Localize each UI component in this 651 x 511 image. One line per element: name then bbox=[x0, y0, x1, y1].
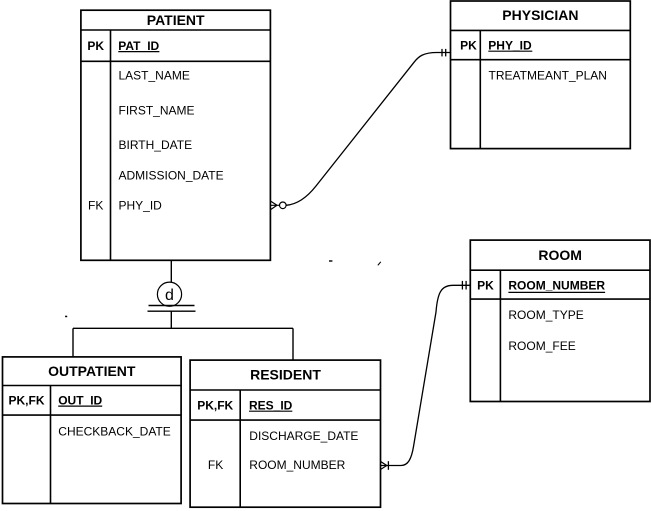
svg-text:ROOM_NUMBER: ROOM_NUMBER bbox=[508, 279, 605, 293]
svg-text:FK: FK bbox=[88, 199, 103, 213]
svg-text:PK: PK bbox=[477, 279, 494, 293]
svg-text:RESIDENT: RESIDENT bbox=[250, 367, 321, 383]
svg-text:PHY_ID: PHY_ID bbox=[488, 38, 532, 52]
svg-text:PK: PK bbox=[460, 38, 477, 52]
svg-text:FK: FK bbox=[208, 458, 223, 472]
svg-text:DISCHARGE_DATE: DISCHARGE_DATE bbox=[249, 429, 358, 443]
svg-text:PATIENT: PATIENT bbox=[147, 12, 205, 28]
svg-text:FIRST_NAME: FIRST_NAME bbox=[119, 104, 195, 118]
svg-text:RES_ID: RES_ID bbox=[249, 399, 293, 413]
svg-text:PHY_ID: PHY_ID bbox=[119, 199, 163, 213]
svg-text:PHYSICIAN: PHYSICIAN bbox=[502, 7, 578, 23]
svg-text:ROOM_FEE: ROOM_FEE bbox=[508, 339, 575, 353]
svg-text:PK,FK: PK,FK bbox=[9, 394, 45, 408]
svg-text:PAT_ID: PAT_ID bbox=[118, 39, 159, 53]
svg-text:PK,FK: PK,FK bbox=[197, 399, 233, 413]
svg-text:ROOM: ROOM bbox=[538, 247, 582, 263]
svg-text:OUT_ID: OUT_ID bbox=[58, 394, 102, 408]
svg-text:TREATMEANT_PLAN: TREATMEANT_PLAN bbox=[489, 69, 607, 83]
svg-text:OUTPATIENT: OUTPATIENT bbox=[48, 363, 136, 379]
svg-text:CHECKBACK_DATE: CHECKBACK_DATE bbox=[58, 425, 170, 439]
svg-text:ROOM_NUMBER: ROOM_NUMBER bbox=[249, 458, 345, 472]
svg-text:ADMISSION_DATE: ADMISSION_DATE bbox=[119, 169, 224, 183]
svg-text:d: d bbox=[165, 287, 174, 304]
svg-text:BIRTH_DATE: BIRTH_DATE bbox=[119, 138, 193, 152]
svg-text:ROOM_TYPE: ROOM_TYPE bbox=[508, 308, 583, 322]
svg-text:LAST_NAME: LAST_NAME bbox=[119, 68, 190, 82]
svg-text:PK: PK bbox=[87, 39, 104, 53]
